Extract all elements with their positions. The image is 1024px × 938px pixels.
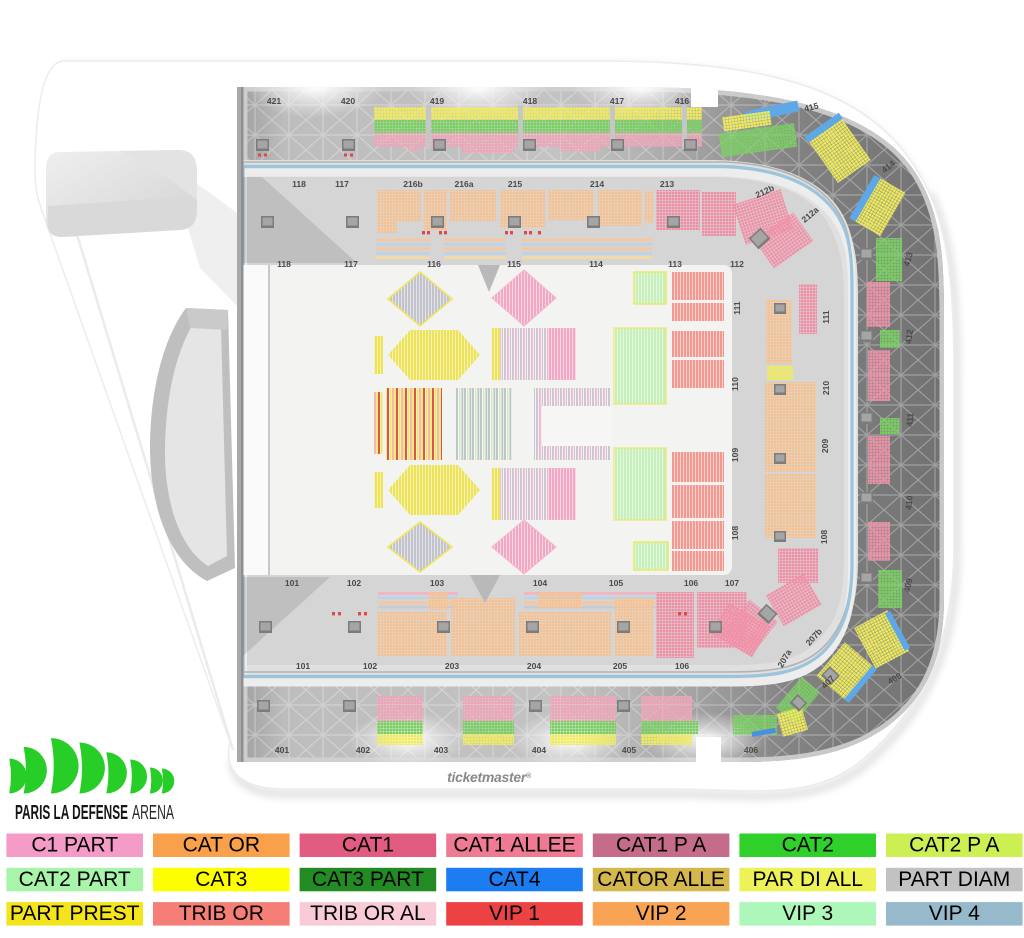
svg-text:110: 110 (730, 377, 740, 391)
svg-text:CAT1: CAT1 (342, 834, 394, 857)
svg-text:114: 114 (589, 259, 603, 269)
svg-text:CAT4: CAT4 (488, 868, 540, 891)
svg-text:TRIB OR: TRIB OR (179, 902, 264, 925)
svg-text:417: 417 (610, 96, 625, 106)
svg-text:205: 205 (613, 661, 628, 671)
svg-text:421: 421 (267, 96, 282, 106)
svg-text:405: 405 (622, 745, 637, 755)
svg-text:ARENA: ARENA (132, 802, 174, 824)
svg-text:101: 101 (285, 578, 300, 588)
svg-text:402: 402 (356, 745, 371, 755)
svg-text:PART DIAM: PART DIAM (898, 868, 1010, 891)
svg-text:111: 111 (732, 301, 742, 315)
svg-text:412: 412 (903, 329, 915, 345)
svg-text:ticketmaster®: ticketmaster® (447, 769, 532, 785)
svg-text:108: 108 (819, 530, 829, 545)
svg-text:103: 103 (430, 578, 445, 588)
svg-text:216b: 216b (403, 179, 423, 189)
svg-text:210: 210 (821, 381, 831, 396)
svg-text:PAR DI ALL: PAR DI ALL (752, 868, 863, 891)
svg-text:213: 213 (660, 179, 675, 189)
svg-text:410: 410 (903, 495, 914, 510)
svg-text:108: 108 (730, 526, 740, 541)
svg-text:CAT OR: CAT OR (183, 834, 260, 857)
svg-text:101: 101 (296, 661, 311, 671)
svg-text:411: 411 (904, 412, 915, 427)
svg-text:CAT1 ALLEE: CAT1 ALLEE (453, 834, 575, 857)
svg-text:CAT3: CAT3 (195, 868, 247, 891)
svg-text:115: 115 (507, 259, 521, 269)
svg-text:106: 106 (684, 578, 699, 588)
svg-text:204: 204 (527, 661, 542, 671)
svg-text:416: 416 (675, 96, 690, 106)
svg-text:109: 109 (730, 448, 740, 463)
svg-text:215: 215 (508, 179, 523, 189)
svg-text:107: 107 (725, 578, 740, 588)
svg-text:112: 112 (730, 259, 744, 269)
svg-text:106: 106 (675, 661, 690, 671)
svg-text:403: 403 (434, 745, 449, 755)
svg-text:216a: 216a (454, 179, 473, 189)
svg-text:VIP 3: VIP 3 (782, 902, 833, 925)
svg-text:CAT2: CAT2 (782, 834, 834, 857)
svg-text:PARIS LA DEFENSE: PARIS LA DEFENSE (15, 802, 128, 824)
svg-text:419: 419 (430, 96, 445, 106)
svg-text:VIP 2: VIP 2 (636, 902, 687, 925)
svg-text:118: 118 (277, 259, 291, 269)
svg-text:PART PREST: PART PREST (10, 902, 140, 925)
svg-text:113: 113 (668, 259, 682, 269)
svg-text:CAT2 PART: CAT2 PART (19, 868, 131, 891)
svg-text:TRIB OR AL: TRIB OR AL (310, 902, 426, 925)
svg-text:VIP 1: VIP 1 (489, 902, 540, 925)
svg-text:102: 102 (347, 578, 362, 588)
svg-text:VIP 4: VIP 4 (929, 902, 980, 925)
svg-text:418: 418 (523, 96, 538, 106)
svg-text:102: 102 (363, 661, 378, 671)
svg-text:104: 104 (533, 578, 548, 588)
svg-text:116: 116 (427, 259, 441, 269)
svg-text:105: 105 (609, 578, 624, 588)
svg-text:203: 203 (445, 661, 460, 671)
svg-text:401: 401 (275, 745, 290, 755)
svg-text:406: 406 (744, 745, 759, 755)
svg-text:117: 117 (344, 259, 358, 269)
svg-text:CAT3 PART: CAT3 PART (312, 868, 424, 891)
svg-text:117: 117 (335, 179, 349, 189)
svg-text:209: 209 (820, 439, 830, 454)
svg-text:CATOR ALLE: CATOR ALLE (597, 868, 725, 891)
svg-text:420: 420 (341, 96, 356, 106)
svg-text:214: 214 (590, 179, 605, 189)
svg-text:111: 111 (821, 310, 831, 324)
svg-text:118: 118 (292, 179, 306, 189)
svg-text:404: 404 (532, 745, 547, 755)
svg-text:CAT1 P A: CAT1 P A (616, 834, 706, 857)
svg-text:CAT2 P A: CAT2 P A (909, 834, 999, 857)
svg-text:C1 PART: C1 PART (31, 834, 118, 857)
